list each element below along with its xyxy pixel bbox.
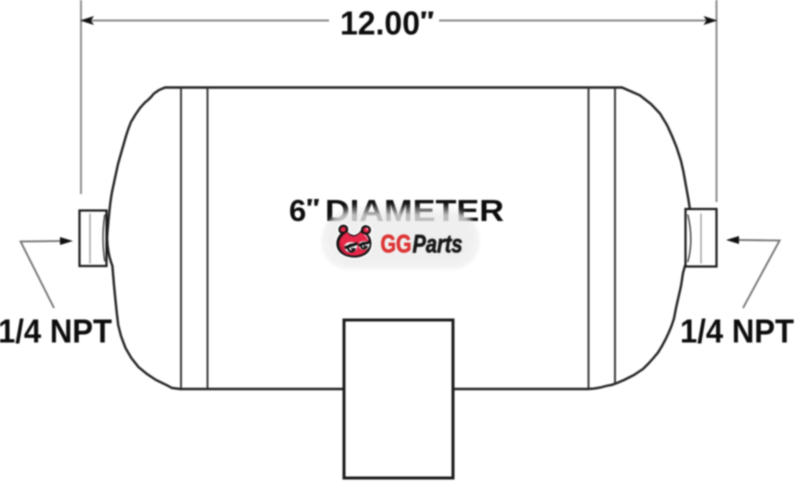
svg-text:Parts: Parts [413, 231, 463, 259]
svg-text:GG: GG [381, 231, 412, 259]
svg-text:1/4 NPT: 1/4 NPT [680, 313, 794, 350]
svg-text:6: 6 [289, 193, 306, 228]
svg-text:12.00: 12.00 [340, 5, 420, 42]
svg-text:1/4 NPT: 1/4 NPT [0, 313, 112, 350]
